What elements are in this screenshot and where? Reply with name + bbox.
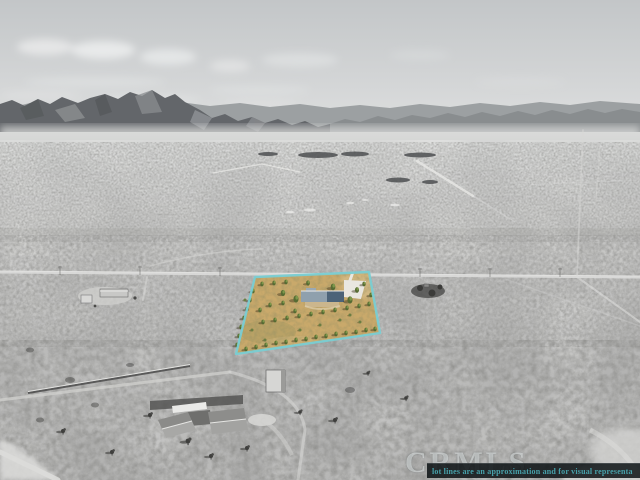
neighbor-trees-east	[411, 284, 445, 298]
aerial-photo-canvas	[0, 0, 640, 480]
listing-photo: CRMLS lot lines are an approximation and…	[0, 0, 640, 480]
disclaimer-banner: lot lines are an approximation and for v…	[427, 463, 640, 478]
disclaimer-text: lot lines are an approximation and for v…	[432, 467, 633, 476]
